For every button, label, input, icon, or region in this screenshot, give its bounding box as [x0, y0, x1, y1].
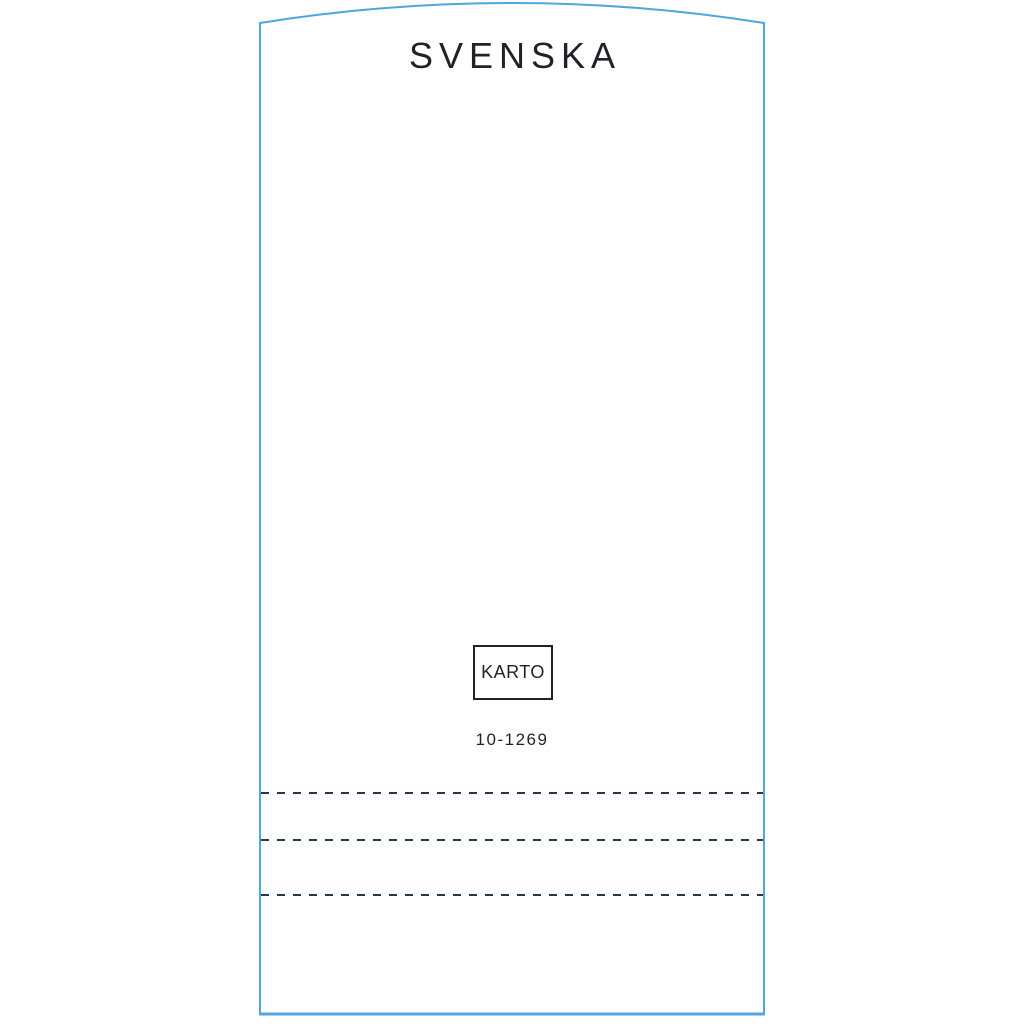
cut-outline	[260, 3, 764, 1014]
item-code: 10-1269	[260, 729, 764, 751]
dieline-svg	[0, 0, 1024, 1024]
dieline-canvas: SVENSKA KARTO 10-1269	[0, 0, 1024, 1024]
brand-title: SVENSKA	[260, 34, 764, 78]
logo-box-label: KARTO	[481, 662, 545, 683]
logo-box: KARTO	[473, 645, 553, 700]
